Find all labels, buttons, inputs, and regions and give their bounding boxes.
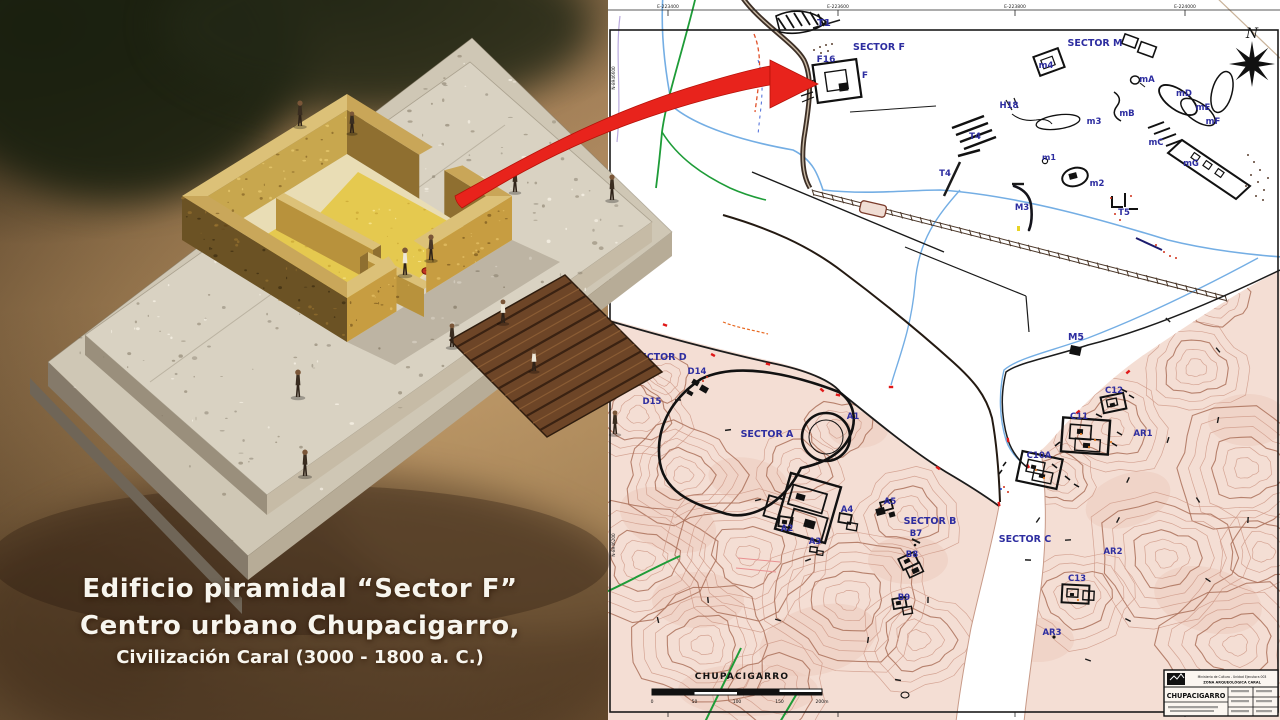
map-label: mD [1176,89,1192,99]
scatter-dot [820,52,822,54]
red-dot [1110,197,1112,199]
map-label: M5 [1068,332,1084,343]
orange-dot [1043,477,1045,479]
scatter-dot [1262,199,1264,201]
title-org-line1: Ministerio de Cultura - Unidad Ejecutora… [1198,675,1267,679]
scatter-dot [1257,181,1259,183]
scatter-dot [831,43,833,45]
map-label: m4 [1039,61,1054,71]
map-label: C10A [1027,451,1052,461]
map-label: m2 [1090,179,1105,189]
map-label: T5 [1118,208,1130,218]
red-dot [1114,213,1116,215]
red-dot [1119,219,1121,221]
scale-tick-label: 50 [692,699,698,705]
map-label: D14 [688,367,707,377]
red-dot [1007,491,1009,493]
caption-block: Edificio piramidal “Sector F” Centro urb… [0,574,600,668]
north-label: N [1245,26,1259,42]
title-field-bar [1231,690,1249,692]
title-field-bar [1256,690,1272,692]
blue-dot [1000,488,1002,490]
rock-dash [895,679,901,680]
scatter-dot [1245,185,1247,187]
title-field-bar [1168,706,1218,708]
archaeological-site-map: E-223400E-223600E-223800E-224000N-894660… [608,0,1280,720]
red-dot [1155,244,1157,246]
map-label: A3 [809,537,822,547]
site-name-label: CHUPACIGARRO [695,672,789,682]
orange-dot [1110,441,1112,443]
caption-civilization: Civilización Caral (3000 - 1800 a. C.) [0,647,600,668]
orange-dot [1080,433,1082,435]
orange-dot [1077,599,1079,601]
map-label: H18 [1000,101,1019,111]
scatter-dot [827,50,829,52]
scatter-dot [1247,154,1249,156]
red-dot [702,380,704,382]
title-field-bar [1231,710,1249,712]
map-label: SECTOR A [741,429,794,440]
orange-dot [1035,469,1037,471]
map-label: A2 [781,524,794,534]
scatter-dot [1267,177,1269,179]
title-field-bar [1231,700,1249,702]
infographic-root: E-223400E-223600E-223800E-224000N-894660… [0,0,1280,720]
map-label: mG [1183,159,1199,169]
map-label: C12 [1105,386,1123,396]
map-label: mF [1206,117,1221,127]
map-label: SECTOR B [904,516,957,527]
title-field-bar [1256,710,1272,712]
scale-bar-seg [737,689,780,695]
map-label: mE [1196,103,1211,113]
map-label: m3 [1087,117,1102,127]
map-label: T4 [969,132,981,142]
b7-dot [914,544,917,547]
scatter-dot [1263,189,1265,191]
title-field-bar [1170,710,1214,712]
map-label: A5 [884,497,897,507]
grid-coordinate-label: E-223600 [827,4,849,10]
map-label: SECTOR C [999,534,1051,545]
scale-tick-label: 150 [775,699,784,705]
map-label: mA [1139,75,1155,85]
m3-yellow-mark [1017,226,1020,231]
scatter-dot [1259,169,1261,171]
map-label: m1 [1042,153,1056,162]
title-block: Ministerio de Cultura - Unidad Ejecutora… [1164,670,1278,716]
map-label: A4 [841,505,854,515]
map-label: SECTOR D [633,352,686,363]
map-label: F [862,71,868,81]
rock-dash [708,597,709,603]
map-label: B7 [910,529,922,539]
grid-coordinate-label: E-224000 [1174,4,1196,10]
map-label: D15 [643,397,662,407]
rock-dash [868,637,869,643]
map-label: mB [1119,109,1134,119]
map-label: B9 [898,593,910,603]
red-dot [1003,486,1005,488]
grid-coordinate-label: E-223800 [1004,4,1026,10]
red-dot [1163,251,1165,253]
scatter-dot [1255,195,1257,197]
title-site-name: CHUPACIGARRO [1167,692,1226,700]
map-label: A1 [847,412,860,422]
caption-title: Edificio piramidal “Sector F” [0,574,600,604]
map-label: C11 [1070,412,1088,422]
scale-bar-seg [695,689,738,692]
map-label: SECTOR M [1068,38,1123,49]
map-label: SECTOR F [853,42,905,53]
grid-coordinate-label: N-8946200 [611,533,616,557]
orange-dot [1088,446,1090,448]
red-dot [1130,195,1132,197]
orange-dot [1094,439,1096,441]
wash-blob [652,572,744,628]
scatter-dot [813,49,815,51]
scatter-dot [1253,161,1255,163]
map-label: M3 [1015,203,1029,213]
rock-dash [725,430,731,431]
map-label: C13 [1068,574,1086,584]
scatter-dot [825,44,827,46]
scale-tick-label: 200m [816,699,829,705]
site-map-panel: E-223400E-223600E-223800E-224000N-894660… [608,0,1280,720]
map-label: AR3 [1042,628,1061,638]
scale-bar-seg [652,689,695,695]
map-label: AR1 [1133,429,1152,439]
scale-bar-seg [780,692,823,695]
ministry-logo [1167,673,1185,685]
red-dot [1175,257,1177,259]
grid-coordinate-label: N-8946600 [611,66,616,90]
title-field-bar [1256,700,1272,702]
scale-tick-label: 0 [651,699,654,705]
map-label: T1 [817,18,831,29]
red-dot [1169,255,1171,257]
structure-fill [1077,429,1083,434]
map-label: B8 [906,550,918,560]
red-boundary-tick [889,386,893,388]
title-org-line2: ZONA ARQUEOLÓGICA CARAL [1203,680,1261,685]
scatter-dot [819,46,821,48]
structure-fill [1070,593,1074,596]
structure-fill [838,82,848,91]
map-label: mC [1148,138,1163,148]
caption-subtitle: Centro urbano Chupacigarro, [0,611,600,641]
grid-coordinate-label: E-223400 [657,4,679,10]
map-label: T4 [939,169,951,179]
scale-tick-label: 100 [733,699,742,705]
map-label: F16 [817,55,836,65]
scatter-dot [1250,174,1252,176]
map-label: AR2 [1103,547,1122,557]
compass-star [1229,41,1275,87]
